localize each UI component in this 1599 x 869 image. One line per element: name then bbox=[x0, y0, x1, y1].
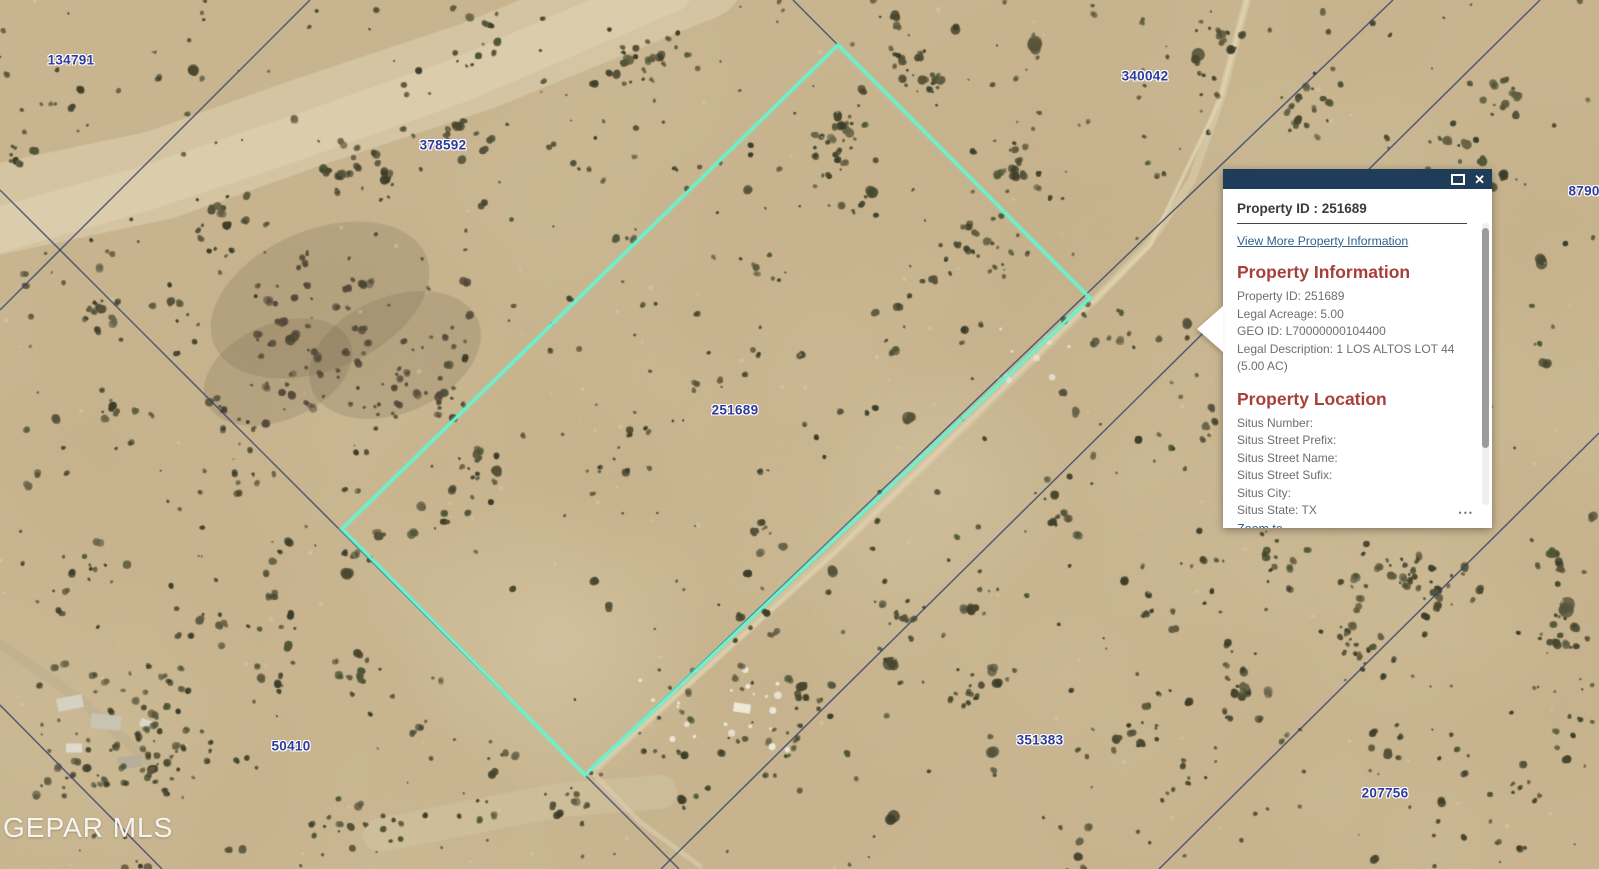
popup-scrollbar-track[interactable] bbox=[1482, 223, 1489, 505]
property-id-line: Property ID: 251689 bbox=[1237, 288, 1468, 306]
situs-state-line: Situs State: TX bbox=[1237, 502, 1468, 520]
situs-street-prefix-line: Situs Street Prefix: bbox=[1237, 432, 1468, 450]
situs-city-line: Situs City: bbox=[1237, 485, 1468, 503]
situs-number-line: Situs Number: bbox=[1237, 415, 1468, 433]
legal-acreage-line: Legal Acreage: 5.00 bbox=[1237, 306, 1468, 324]
selected-parcel-outline[interactable] bbox=[342, 45, 1090, 775]
map-viewport: 1347913785923400428790325168950410351383… bbox=[0, 0, 1599, 869]
popup-pointer-arrow bbox=[1197, 306, 1223, 352]
geo-id-line: GEO ID: L70000000104400 bbox=[1237, 323, 1468, 341]
property-location-heading: Property Location bbox=[1237, 389, 1468, 410]
title-separator bbox=[1237, 223, 1467, 224]
mls-watermark: GEPAR MLS bbox=[3, 812, 173, 844]
situs-street-name-line: Situs Street Name: bbox=[1237, 450, 1468, 468]
situs-street-sufix-line: Situs Street Sufix: bbox=[1237, 467, 1468, 485]
maximize-icon[interactable] bbox=[1451, 174, 1465, 185]
popup-title: Property ID : 251689 bbox=[1237, 201, 1468, 216]
property-popup: ✕ Property ID : 251689 View More Propert… bbox=[1223, 169, 1492, 528]
zoom-to-link[interactable]: Zoom to bbox=[1237, 522, 1283, 529]
popup-scrollbar-thumb[interactable] bbox=[1482, 228, 1489, 448]
selected-parcel-glow bbox=[342, 45, 1090, 775]
legal-description-line: Legal Description: 1 LOS ALTOS LOT 44 (5… bbox=[1237, 341, 1468, 376]
close-icon[interactable]: ✕ bbox=[1474, 173, 1485, 186]
view-more-property-link[interactable]: View More Property Information bbox=[1237, 234, 1408, 248]
more-options-icon[interactable]: ••• bbox=[1459, 508, 1474, 518]
property-information-heading: Property Information bbox=[1237, 262, 1468, 283]
popup-header[interactable]: ✕ bbox=[1223, 169, 1492, 189]
popup-body: Property ID : 251689 View More Property … bbox=[1223, 189, 1492, 528]
